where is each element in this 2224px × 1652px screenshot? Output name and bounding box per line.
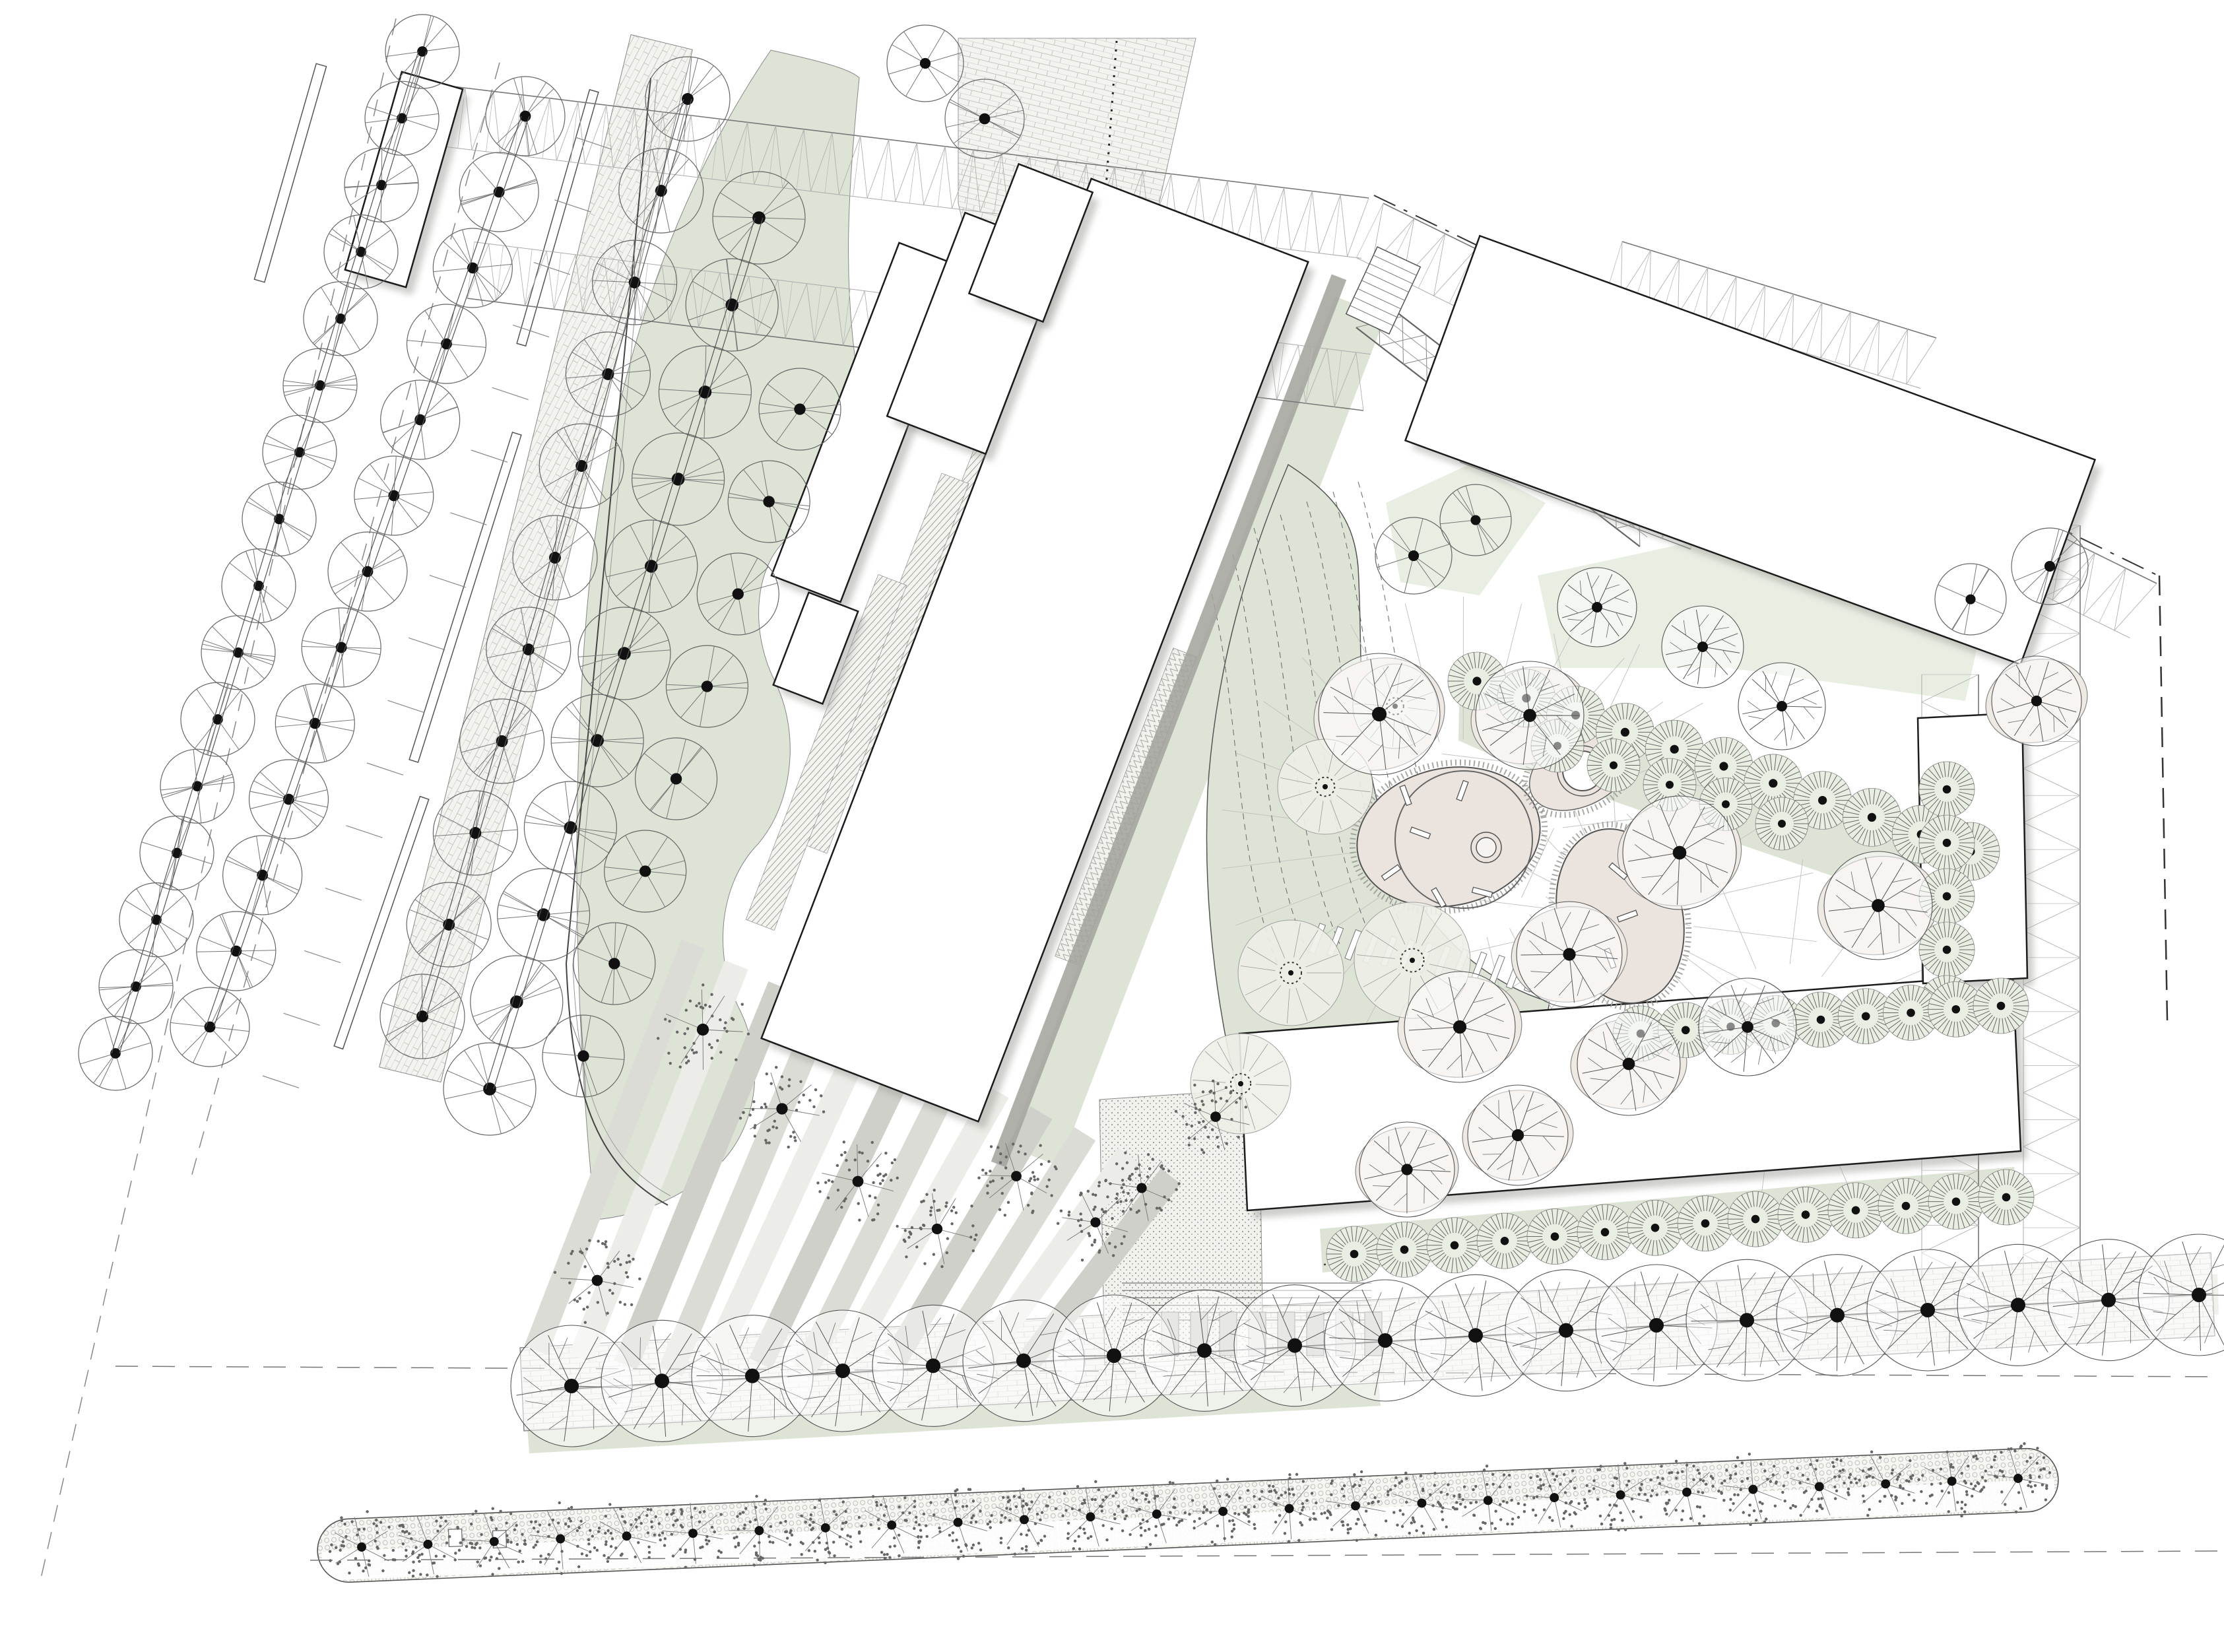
tree-hedge-icon [1928,1174,1984,1230]
tree-canopy-icon [1517,902,1622,1007]
tree-hedge-icon [1678,1196,1733,1251]
tree-canopy-icon [1577,1012,1680,1115]
tree [1662,606,1744,688]
tree-hedge-icon [1878,1178,1934,1234]
tree-lawn-icon [1191,1034,1291,1134]
tree [1738,663,1825,750]
tree-hedge-icon [1755,797,1808,850]
tree-hedge-icon [1828,1183,1883,1238]
tree-hedge-icon [1919,815,1975,871]
tree [1623,796,1736,909]
tree-hedge-icon [1326,1226,1382,1282]
tree-canopy-icon [1319,653,1440,775]
tree-canopy-icon [1623,796,1736,909]
tree-canopy-icon [1992,656,2081,746]
site-plan-canvas [0,0,2224,1652]
tree-canopy-icon [1557,568,1637,647]
tree-hedge-icon [1778,1187,1833,1242]
tree [1359,1122,1455,1217]
tree-hedge-icon [1527,1209,1583,1265]
tree-lawn-icon [1238,920,1344,1026]
tree-hedge-icon [1377,1222,1432,1277]
tree-hedge-icon [1973,978,2029,1034]
tree-canopy-icon [1824,851,1932,960]
tree-hedge-icon [1477,1213,1532,1269]
tree-hedge-icon [1577,1205,1633,1260]
tree-canopy-icon [1359,1122,1455,1217]
tree [1319,653,1440,775]
tree [1557,568,1637,647]
tree-hedge-icon [1587,739,1640,792]
tree [1517,902,1622,1007]
play-ring [1476,838,1496,857]
tree [1476,661,1584,770]
tree [1468,1085,1568,1185]
tree-hedge-icon [1979,1170,2034,1225]
tree [1404,972,1515,1082]
tree-hedge-icon [1627,1200,1683,1255]
tree-canopy-icon [1404,972,1515,1082]
tree-canopy-icon [1738,663,1825,750]
tree-hedge-icon [1919,762,1975,817]
tree [1699,978,1796,1076]
tree-hedge-icon [1427,1218,1482,1273]
tree [1577,1012,1680,1115]
tree [1992,656,2081,746]
tree-hedge-icon [1919,922,1975,977]
tree-canopy-icon [1662,606,1744,688]
tree [1238,920,1344,1026]
tree-canopy-icon [1468,1085,1568,1185]
tree [1191,1034,1291,1134]
tree-canopy-icon [1699,978,1796,1076]
tree-canopy-icon [1476,661,1584,770]
site-plan-svg [0,0,2224,1652]
tree-hedge-icon [1728,1191,1783,1247]
tree [1824,851,1932,960]
